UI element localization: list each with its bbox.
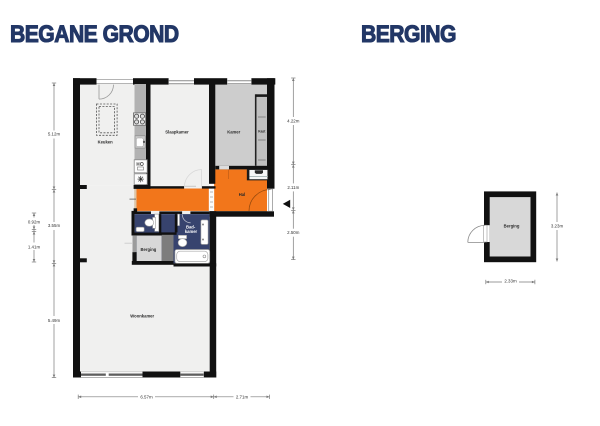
svg-text:3.55m: 3.55m	[48, 223, 61, 228]
svg-text:Hal: Hal	[239, 192, 246, 197]
svg-text:5.12m: 5.12m	[48, 131, 61, 136]
svg-text:3.23m: 3.23m	[551, 224, 564, 229]
svg-text:kamer: kamer	[185, 229, 198, 234]
svg-text:2.33m: 2.33m	[504, 278, 517, 283]
svg-text:4.22m: 4.22m	[287, 118, 300, 123]
svg-text:6.57m: 6.57m	[140, 394, 153, 399]
svg-text:1.41m: 1.41m	[28, 245, 41, 250]
svg-text:Woonkamer: Woonkamer	[130, 314, 154, 319]
svg-text:Keuken: Keuken	[98, 139, 114, 144]
svg-text:5.49m: 5.49m	[48, 318, 61, 323]
svg-text:Kast: Kast	[258, 129, 266, 133]
svg-text:0.92m: 0.92m	[28, 220, 41, 225]
svg-text:Slaapkamer: Slaapkamer	[165, 129, 189, 134]
svg-text:2.71m: 2.71m	[236, 394, 249, 399]
svg-text:Berging: Berging	[504, 224, 520, 229]
svg-text:Kamer: Kamer	[227, 130, 240, 135]
svg-text:2.11m: 2.11m	[287, 185, 299, 190]
svg-text:2.50m: 2.50m	[287, 230, 300, 235]
svg-text:Berging: Berging	[141, 247, 157, 252]
